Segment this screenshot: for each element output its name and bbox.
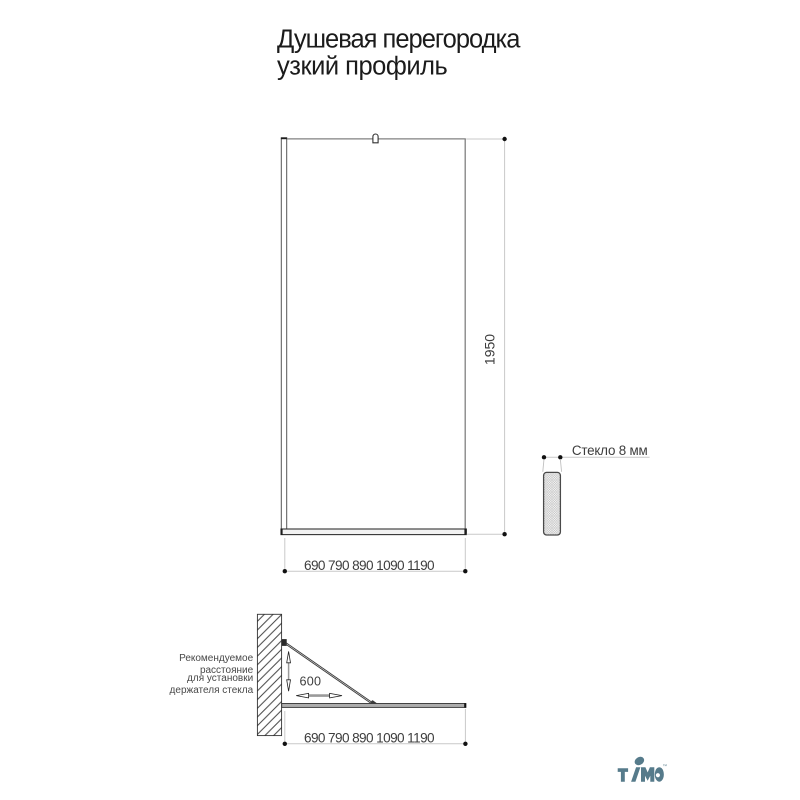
svg-text:для установки: для установки — [187, 673, 253, 684]
svg-text:Душевая перегородка: Душевая перегородка — [277, 25, 521, 53]
svg-text:Стекло 8 мм: Стекло 8 мм — [572, 443, 648, 458]
svg-text:узкий профиль: узкий профиль — [277, 52, 447, 80]
svg-text:держателя стекла: держателя стекла — [170, 685, 254, 696]
svg-text:1950: 1950 — [482, 334, 498, 365]
svg-text:600: 600 — [299, 674, 321, 688]
svg-text:690 790 890 1090 1190: 690 790 890 1090 1190 — [304, 730, 435, 745]
svg-text:690 790 890 1090 1190: 690 790 890 1090 1190 — [304, 558, 435, 573]
svg-text:Рекомендуемое: Рекомендуемое — [179, 653, 254, 664]
svg-text:™: ™ — [663, 764, 668, 769]
